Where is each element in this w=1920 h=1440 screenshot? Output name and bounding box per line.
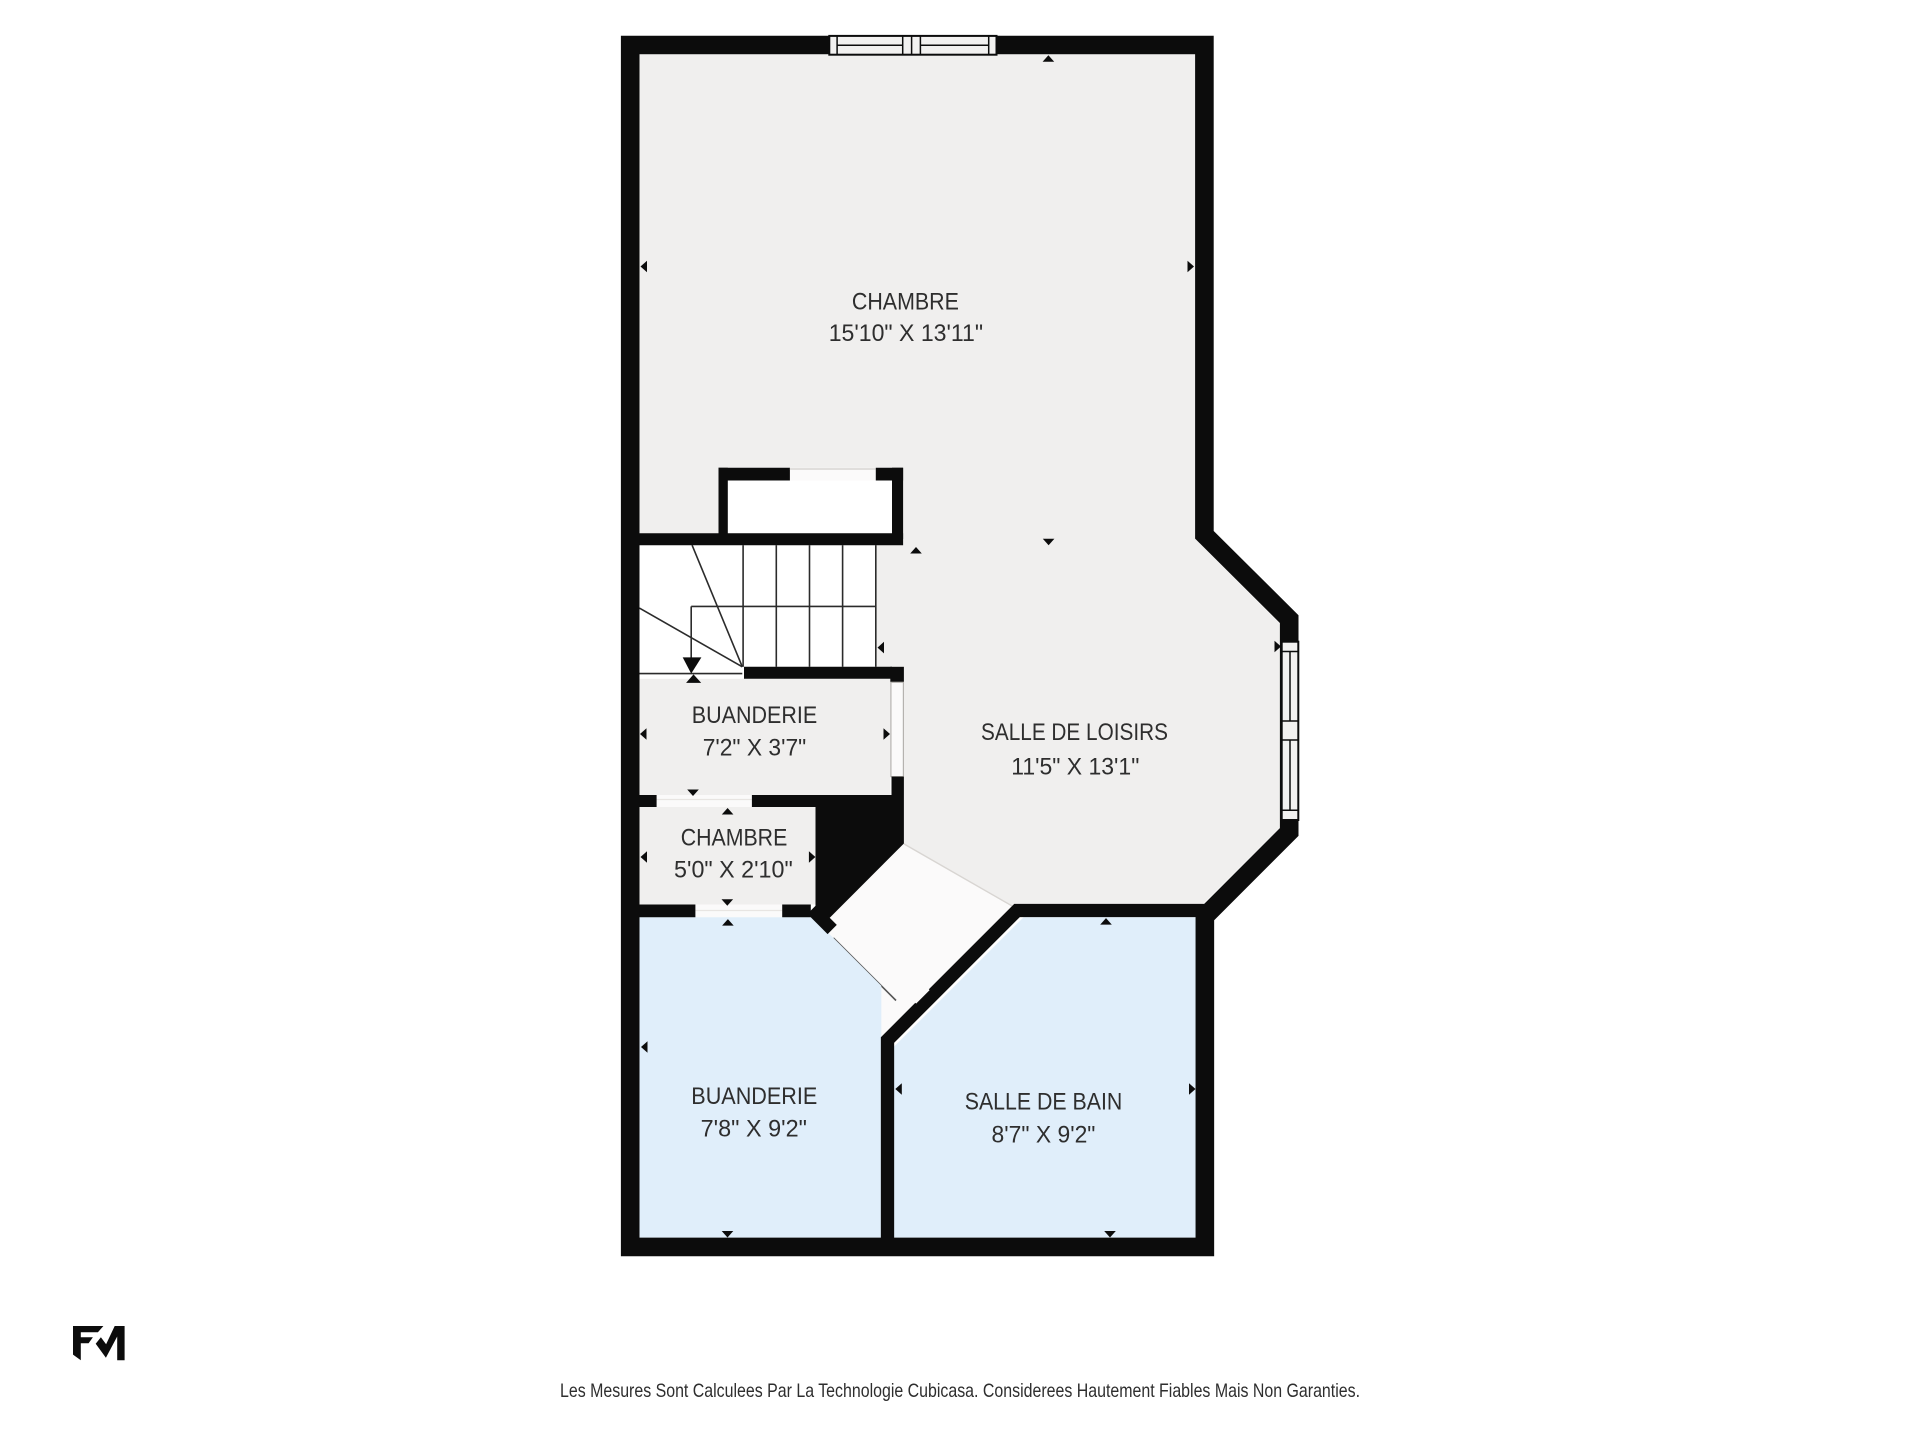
svg-text:7'2" X 3'7": 7'2" X 3'7" bbox=[703, 735, 807, 762]
svg-text:CHAMBRE: CHAMBRE bbox=[681, 825, 788, 852]
svg-text:SALLE DE LOISIRS: SALLE DE LOISIRS bbox=[981, 719, 1168, 746]
svg-text:15'10" X 13'11": 15'10" X 13'11" bbox=[829, 320, 983, 347]
svg-text:SALLE DE BAIN: SALLE DE BAIN bbox=[965, 1088, 1123, 1115]
svg-text:CHAMBRE: CHAMBRE bbox=[852, 289, 959, 316]
svg-text:BUANDERIE: BUANDERIE bbox=[691, 1083, 817, 1110]
svg-text:5'0" X 2'10": 5'0" X 2'10" bbox=[674, 857, 793, 884]
svg-text:7'8" X 9'2": 7'8" X 9'2" bbox=[701, 1116, 807, 1143]
svg-text:BUANDERIE: BUANDERIE bbox=[692, 702, 817, 729]
svg-text:Les Mesures Sont Calculees Par: Les Mesures Sont Calculees Par La Techno… bbox=[560, 1380, 1360, 1402]
svg-text:11'5" X 13'1": 11'5" X 13'1" bbox=[1011, 754, 1139, 781]
svg-text:8'7" X 9'2": 8'7" X 9'2" bbox=[992, 1121, 1096, 1148]
